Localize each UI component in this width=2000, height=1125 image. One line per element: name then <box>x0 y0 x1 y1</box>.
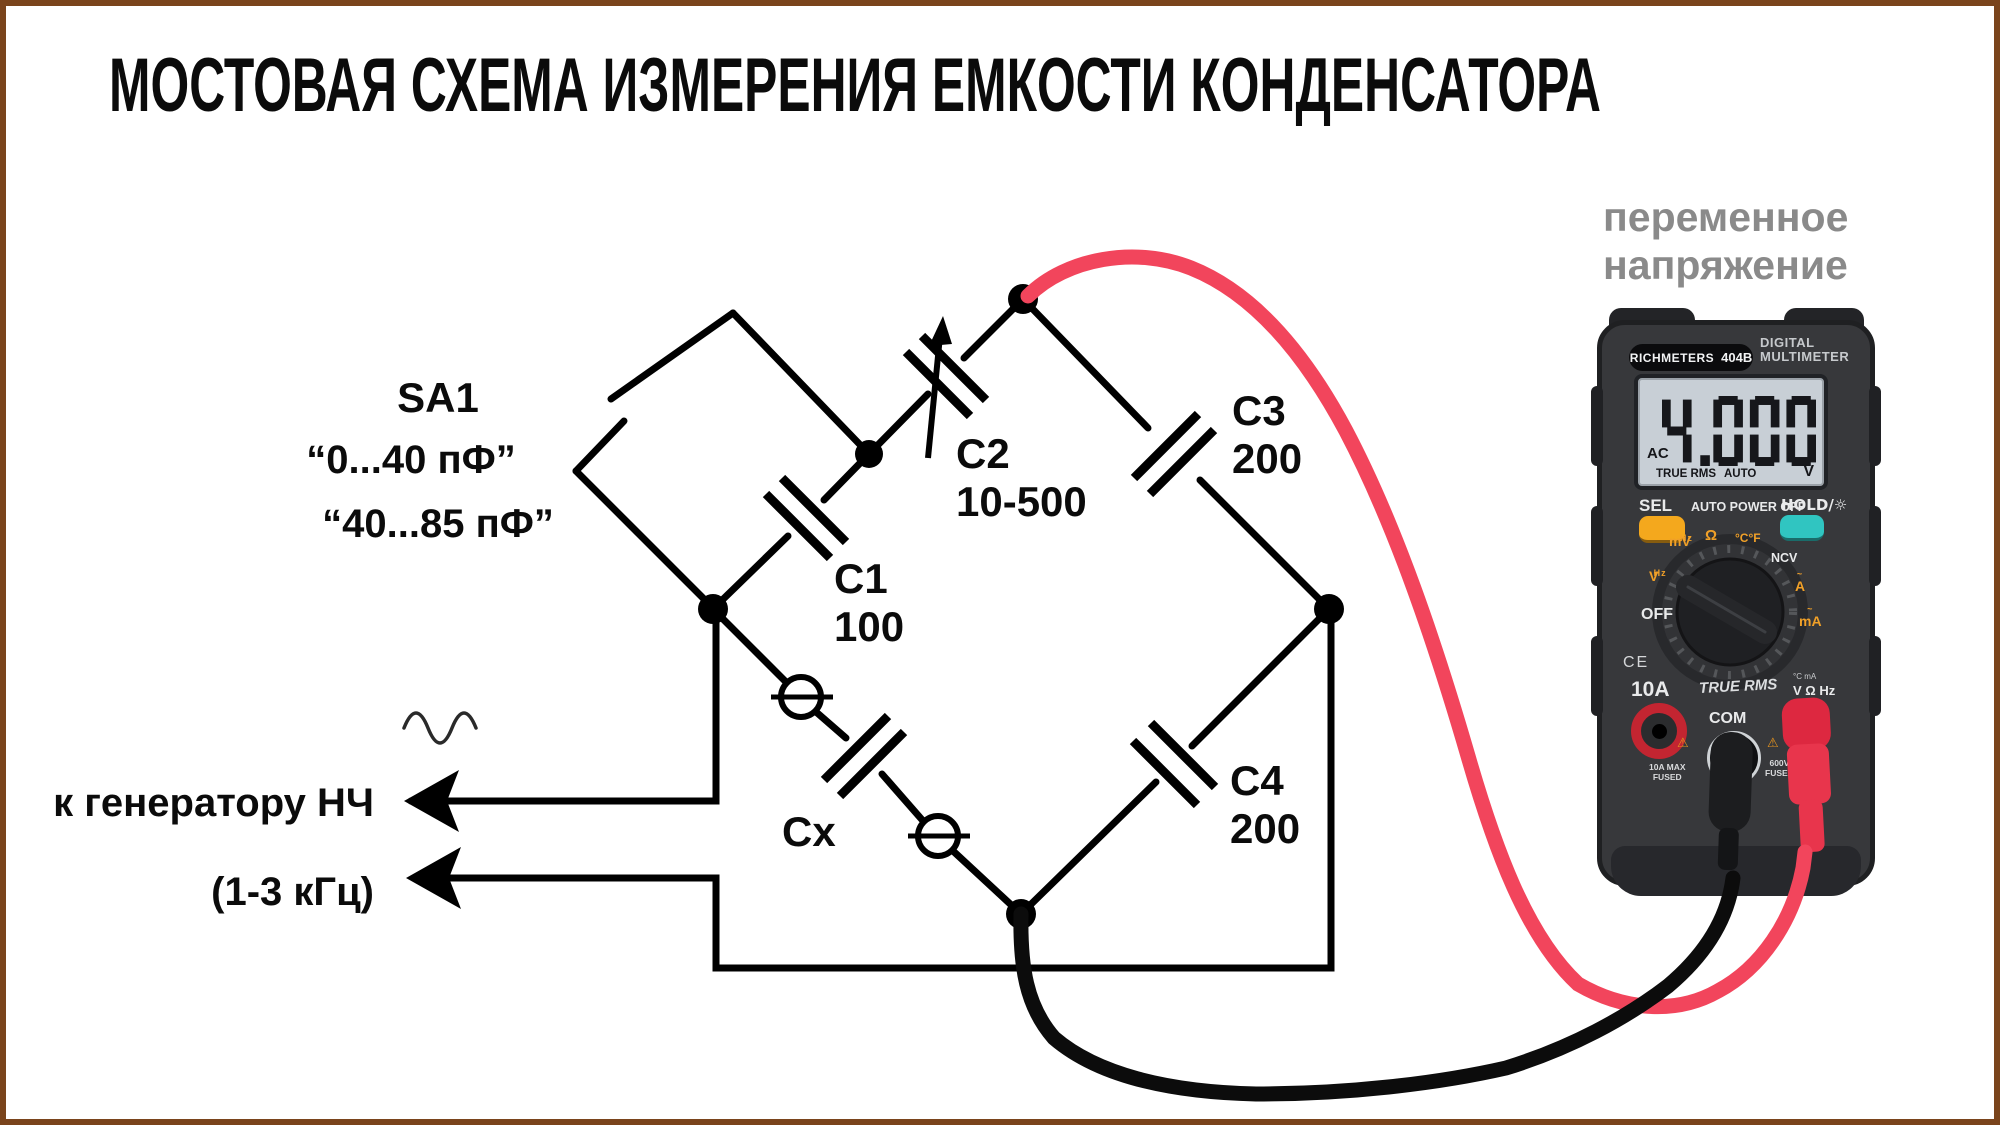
generator-label: к генератору НЧ <box>46 781 374 826</box>
warning-triangle-icon: ⚠ <box>1677 736 1689 751</box>
amp-fuse-note: 10A MAX FUSED <box>1649 762 1686 782</box>
wire-c4-to-b <box>1021 782 1156 914</box>
node-switch-junction <box>855 440 883 468</box>
wire-cx-to-clip2 <box>882 774 924 822</box>
model-number: 404B <box>1721 350 1752 365</box>
lcd-display: AC TRUE RMS AUTO V <box>1634 374 1828 490</box>
red-probe-body <box>1786 743 1831 805</box>
wire-c3-to-r <box>1200 480 1329 609</box>
dial-milliamp-letter: mA <box>1799 614 1822 628</box>
capacitor-c3-label: C3 200 <box>1232 387 1302 483</box>
switch-sa1-lower-contact <box>576 471 713 608</box>
dial-amp-label: ~ A <box>1795 570 1805 593</box>
wire-l-to-clip1 <box>713 609 787 683</box>
wire-l-to-c1 <box>713 536 788 609</box>
wire-r-to-c4 <box>1192 609 1329 746</box>
device-type-line1: DIGITAL <box>1760 336 1849 350</box>
page-title: МОСТОВАЯ СХЕМА ИЗМЕРЕНИЯ ЕМКОСТИ КОНДЕНС… <box>109 46 1601 126</box>
capacitor-c2-label: C2 10-500 <box>956 430 1087 526</box>
amp-jack-hole <box>1652 724 1667 739</box>
ce-mark: CE <box>1623 654 1649 672</box>
switch-sa1-label: SA1 <box>338 374 538 422</box>
switch-sa1-lower-stub <box>576 421 624 471</box>
amp-jack-label: 10A <box>1631 678 1670 702</box>
lcd-unit: V <box>1803 463 1814 481</box>
switch-range1-label: “0...40 пФ” <box>276 436 546 484</box>
volt-jack-icons: °C mA <box>1793 672 1816 681</box>
node-left <box>698 594 728 624</box>
amp-fuse-line2: FUSED <box>1649 772 1686 782</box>
dial-temp-label: °C°F <box>1735 532 1761 544</box>
capacitor-c1-label: C1 100 <box>834 555 904 651</box>
dial-ncv-label: NCV <box>1771 551 1797 565</box>
dial-ohm-label: Ω <box>1705 528 1717 543</box>
switch-sa1-top-contact <box>733 313 869 454</box>
lcd-truerms-flag: TRUE RMS <box>1656 468 1716 480</box>
switch-range2-label: “40...85 пФ” <box>288 500 588 548</box>
com-jack-label: COM <box>1709 710 1746 728</box>
c4-ref: C4 <box>1230 757 1300 805</box>
c3-ref: C3 <box>1232 387 1302 435</box>
wire-clip1-to-cx <box>815 711 846 738</box>
dial-vac-label: ~Hz V <box>1649 569 1658 583</box>
diagram-canvas: МОСТОВАЯ СХЕМА ИЗМЕРЕНИЯ ЕМКОСТИ КОНДЕНС… <box>0 0 2000 1125</box>
generator-frequency-label: (1-3 кГц) <box>46 870 374 915</box>
lcd-auto-flag: AUTO <box>1724 468 1756 480</box>
black-probe-tip <box>1718 828 1739 871</box>
ac-voltage-note-line2: напряжение <box>1603 242 1848 290</box>
wire-t-to-c3 <box>1023 299 1148 428</box>
multimeter: RICHMETERS 404B DIGITAL MULTIMETER AC TR… <box>1597 306 1875 901</box>
volt-jack-label: V Ω Hz <box>1793 683 1835 698</box>
hz-label: Hz <box>1680 534 1693 543</box>
brand-badge: RICHMETERS 404B <box>1629 344 1753 371</box>
device-type-label: DIGITAL MULTIMETER <box>1760 336 1849 364</box>
node-right <box>1314 594 1344 624</box>
brand-name: RICHMETERS <box>1630 351 1714 365</box>
dial-milliamp-label: ~ mA <box>1799 605 1822 628</box>
c1-value: 100 <box>834 603 904 651</box>
wire-generator-bottom <box>414 609 1331 968</box>
sel-button-label: SEL <box>1639 496 1672 516</box>
red-probe-shaft <box>1798 799 1825 852</box>
meter-grip <box>1869 636 1881 716</box>
black-probe-handle <box>1708 731 1753 832</box>
meter-grip <box>1591 506 1603 586</box>
c4-value: 200 <box>1230 805 1300 853</box>
lcd-seven-segment-value <box>1662 396 1816 466</box>
c1-ref: C1 <box>834 555 904 603</box>
warning-triangle-icon: ⚠ <box>1767 736 1779 751</box>
amp-fuse-line1: 10A MAX <box>1649 762 1686 772</box>
dial-amp-letter: A <box>1795 579 1805 593</box>
ac-voltage-note-line1: переменное <box>1603 194 1848 242</box>
c2-ref: C2 <box>956 430 1087 478</box>
sine-wave-icon <box>404 713 476 743</box>
hz-label: Hz <box>1654 569 1667 578</box>
hold-button-label: HOLD/☼ <box>1781 496 1847 514</box>
device-type-line2: MULTIMETER <box>1760 350 1849 364</box>
meter-grip <box>1591 636 1603 716</box>
c2-value: 10-500 <box>956 478 1087 526</box>
ac-voltage-note: переменное напряжение <box>1603 194 1848 290</box>
node-bottom <box>1006 899 1036 929</box>
meter-grip <box>1869 386 1881 466</box>
node-top <box>1008 284 1038 314</box>
capacitor-c4-label: C4 200 <box>1230 757 1300 853</box>
black-probe-plug <box>1707 731 1754 870</box>
switch-sa1-blade <box>611 313 733 399</box>
meter-grip <box>1869 506 1881 586</box>
c3-value: 200 <box>1232 435 1302 483</box>
dial-mv-label: ~Hz mV <box>1669 534 1691 548</box>
dial-off-label: OFF <box>1641 606 1673 624</box>
meter-grip <box>1591 386 1603 466</box>
capacitor-cx-label: Cx <box>782 808 836 856</box>
red-probe-plug <box>1781 697 1837 853</box>
